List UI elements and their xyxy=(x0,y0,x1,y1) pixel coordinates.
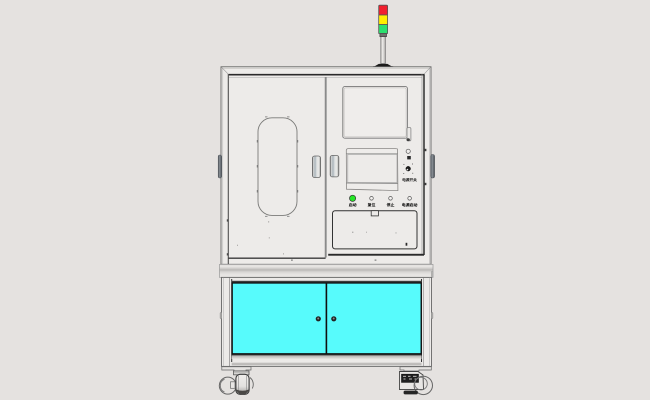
svg-text:启动: 启动 xyxy=(349,202,357,207)
svg-text:电源开关: 电源开关 xyxy=(402,177,417,182)
svg-text:电源启动: 电源启动 xyxy=(402,202,418,207)
svg-text:停止: 停止 xyxy=(386,202,395,207)
svg-text:复位: 复位 xyxy=(367,202,376,207)
